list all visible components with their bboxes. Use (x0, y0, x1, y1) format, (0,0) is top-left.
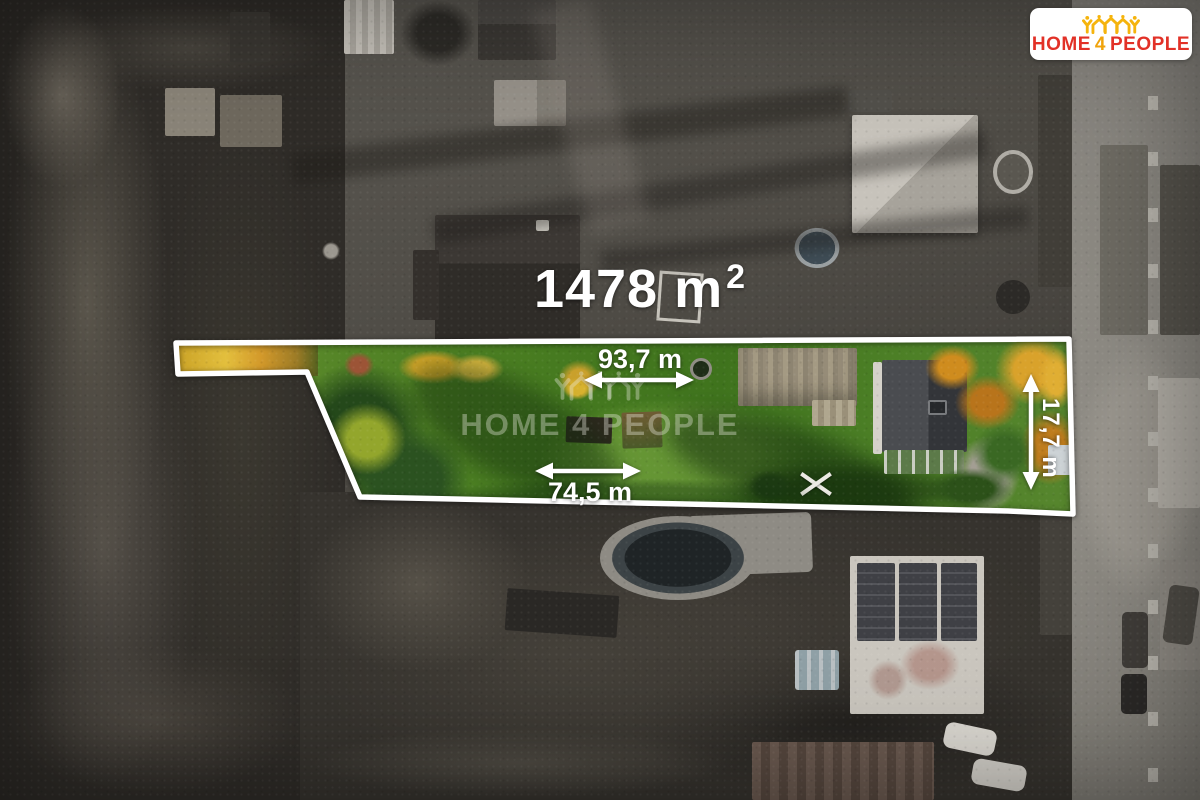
brand-name: HOME4PEOPLE (1032, 35, 1190, 54)
aerial-property-photo: 1478 m2 93,7 m 74,5 m 17,7 m HOME 4 P (0, 0, 1200, 800)
top-width-label: 93,7 m (584, 344, 696, 375)
area-superscript: 2 (726, 258, 746, 296)
area-label: 1478 m2 (525, 262, 755, 316)
brand-word-home: HOME (1032, 34, 1091, 55)
brand-badge: HOME4PEOPLE (1030, 8, 1192, 60)
watermark-text: HOME 4 PEOPLE (450, 407, 750, 443)
area-value: 1478 m (534, 259, 723, 319)
brand-word-4: 4 (1095, 34, 1106, 55)
right-depth-label: 17,7 m (1036, 398, 1064, 498)
bottom-width-label: 74,5 m (534, 477, 646, 508)
brand-word-people: PEOPLE (1110, 34, 1190, 55)
houses-crown-icon (1082, 15, 1140, 34)
